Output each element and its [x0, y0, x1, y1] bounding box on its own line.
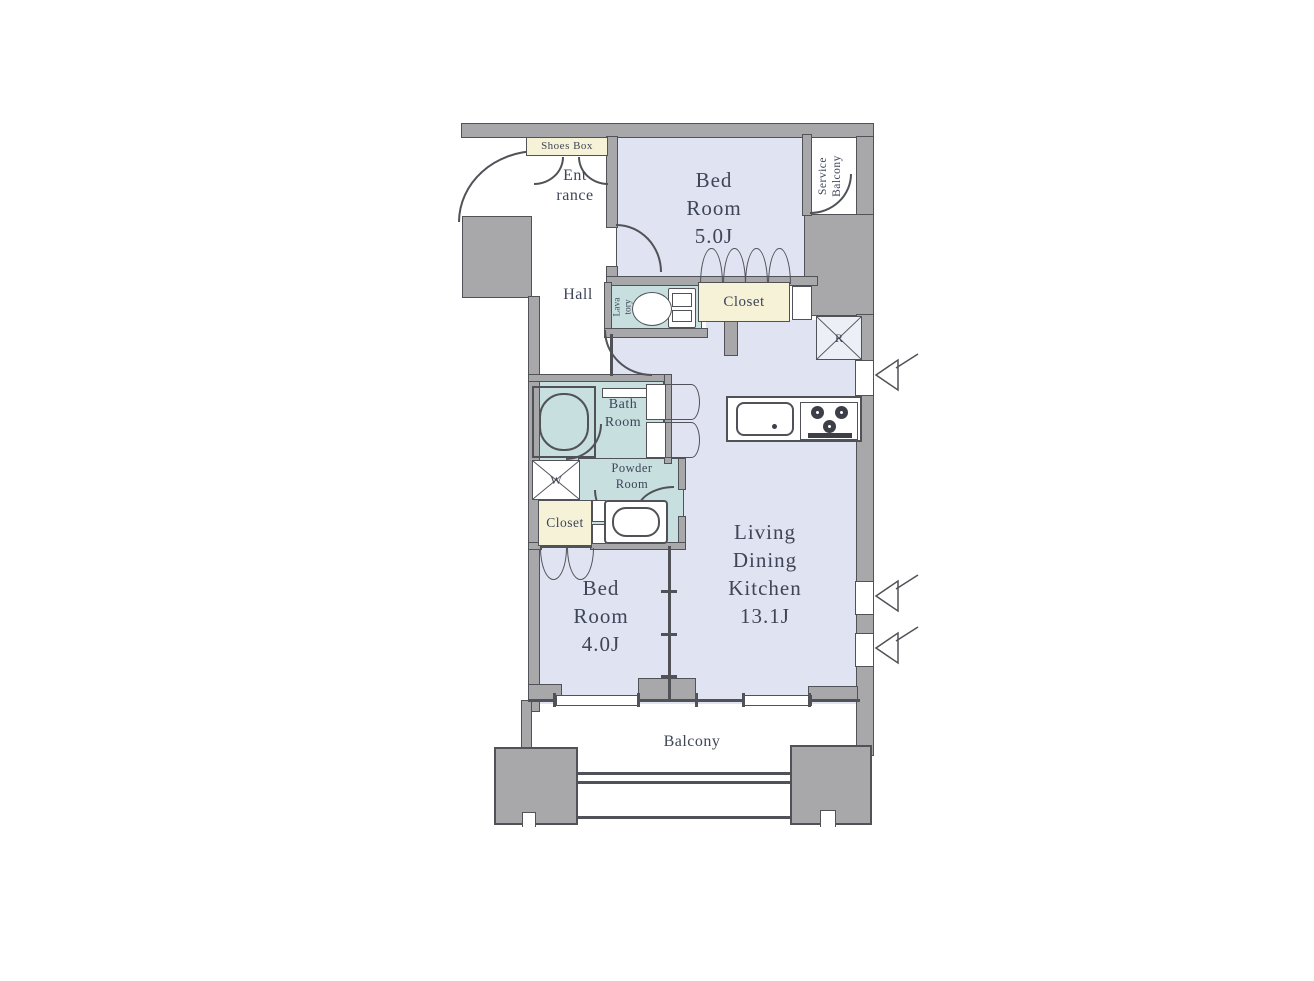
kitchen-sink — [736, 402, 794, 436]
partition-tick — [661, 675, 677, 678]
burner-icon — [835, 406, 848, 419]
wall-closet-stub — [724, 320, 738, 356]
sill-tick — [553, 693, 556, 707]
sill-tick — [695, 693, 698, 707]
lavatory-line2: tory — [623, 298, 634, 317]
bath-line1: Bath — [588, 396, 658, 414]
toilet-tank-inner — [672, 293, 692, 307]
lavatory-label: Lava tory — [610, 282, 636, 332]
ldk-label: Living Dining Kitchen 13.1J — [698, 518, 832, 630]
shoes-box-label: Shoes Box — [541, 141, 593, 152]
bedroom5-line1: Bed — [640, 166, 788, 194]
toilet-bowl — [632, 292, 672, 326]
ldk-line3: Kitchen — [698, 574, 832, 602]
partition-tick — [661, 633, 677, 636]
balcony-rail-2 — [578, 781, 790, 784]
balcony-rail-1 — [578, 772, 790, 775]
sill-tick — [742, 693, 745, 707]
fridge-space: R — [816, 316, 862, 360]
bathroom-label: Bath Room — [588, 396, 658, 434]
partition-tick — [661, 590, 677, 593]
window-ldk — [744, 695, 812, 706]
window-marker-icon — [872, 625, 920, 671]
powder-line1: Powder — [592, 460, 672, 476]
pillar-notch — [522, 812, 536, 827]
closet-bottom: Closet — [538, 500, 592, 546]
closet-top-label: Closet — [723, 294, 764, 311]
wall-balcony-left — [521, 700, 532, 750]
pillar-notch — [820, 810, 836, 827]
bathtub — [539, 393, 589, 451]
closet-top: Closet — [698, 282, 790, 322]
vanity-sink — [612, 507, 660, 537]
entrance-line2: rance — [538, 186, 612, 206]
burner-icon — [811, 406, 824, 419]
powder-room-label: Powder Room — [592, 460, 672, 494]
bedroom5-area: 5.0J — [640, 222, 788, 250]
bedroom4-label: Bed Room 4.0J — [546, 574, 656, 660]
wall-right-upper — [856, 136, 874, 218]
ldk-line2: Dining — [698, 546, 832, 574]
entrance-door-arc — [458, 150, 538, 222]
bath-line2: Room — [588, 414, 658, 432]
shoes-box: Shoes Box — [526, 137, 608, 156]
window-marker-icon — [872, 573, 920, 619]
entrance-label: Ent rance — [538, 166, 612, 212]
ldk-area: 13.1J — [698, 602, 832, 630]
wall-right-block — [804, 214, 874, 316]
wall-left-pillar — [462, 216, 532, 298]
cabinet-door — [666, 384, 700, 420]
toilet-tank-inner — [672, 310, 692, 322]
hall-label: Hall — [550, 285, 606, 307]
service-balcony-label: Service Balcony — [802, 138, 858, 214]
balcony-pillar-left — [494, 747, 578, 825]
window-marker-icon — [872, 352, 920, 398]
fridge-label: R — [817, 317, 861, 359]
bedroom4-area: 4.0J — [546, 630, 656, 658]
bedroom5-label: Bed Room 5.0J — [640, 166, 788, 252]
washer-label: W — [533, 461, 579, 499]
window-bedroom4 — [556, 695, 640, 706]
bedroom5-line2: Room — [640, 194, 788, 222]
wall-powder-right-a — [678, 458, 686, 490]
closet-top-notch — [792, 286, 812, 320]
burner-icon — [823, 420, 836, 433]
balcony-rail-3 — [578, 816, 790, 819]
entrance-line1: Ent — [538, 166, 612, 186]
bedroom4-line2: Room — [546, 602, 656, 630]
lavatory-line1: Lava — [612, 298, 623, 317]
balcony-label: Balcony — [640, 731, 744, 755]
floor-plan: Shoes Box Closet R — [0, 0, 1314, 981]
wall-top — [461, 123, 874, 138]
closet-bottom-label: Closet — [546, 515, 584, 531]
service-balcony-line2: Balcony — [830, 155, 844, 197]
cabinet-door — [666, 422, 700, 458]
washer-space: W — [532, 460, 580, 500]
ldk-line1: Living — [698, 518, 832, 546]
sill-tick — [637, 693, 640, 707]
service-balcony-line1: Service — [816, 155, 830, 197]
sink-drain-icon — [772, 424, 777, 429]
bedroom4-line1: Bed — [546, 574, 656, 602]
stove-grill — [808, 433, 852, 438]
sill-tick — [808, 693, 811, 707]
powder-line2: Room — [592, 476, 672, 492]
